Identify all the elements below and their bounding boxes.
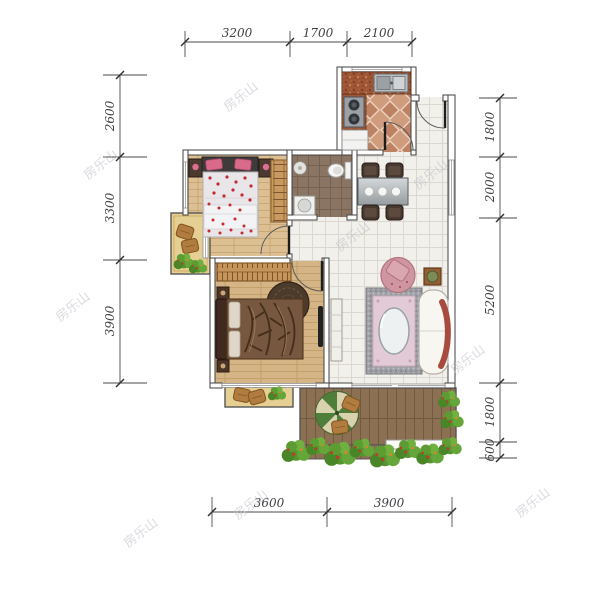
- nightstand: [189, 159, 202, 177]
- dimension-label: 2600: [103, 100, 117, 132]
- sliding-door: [352, 384, 445, 388]
- floor-plan-svg: 3200 1700 2100 2600 3300 3900 1800 2000 …: [0, 0, 600, 600]
- watermark: 房乐山: [81, 147, 122, 184]
- window: [184, 162, 188, 208]
- plant-stand: [424, 268, 441, 285]
- kitchen-sink: [374, 74, 408, 92]
- dimension-label: 3200: [222, 26, 253, 40]
- dimension-label: 5200: [483, 284, 497, 315]
- window: [222, 384, 316, 388]
- washing-machine: [294, 196, 315, 215]
- dimension-label: 2000: [483, 171, 497, 203]
- watermark: 房乐山: [513, 485, 554, 522]
- watermark: 房乐山: [121, 515, 162, 552]
- nightstand: [217, 287, 229, 299]
- dimension-label: 3900: [103, 305, 117, 336]
- toilet: [328, 162, 351, 179]
- dimension-label: 1800: [483, 111, 497, 142]
- dimension-label: 1700: [303, 26, 334, 40]
- bed-master: [216, 299, 303, 359]
- dimension-label: 3300: [103, 192, 117, 223]
- dining-chair: [386, 163, 403, 178]
- armchair: [381, 258, 415, 293]
- plate: [365, 187, 374, 196]
- plate: [392, 187, 401, 196]
- nightstand: [217, 360, 229, 372]
- seat-cushion: [331, 419, 349, 434]
- wardrobe: [271, 160, 287, 222]
- window: [352, 68, 402, 72]
- area-rug: [366, 288, 422, 374]
- dining-chair: [362, 205, 379, 220]
- dining-chair: [362, 163, 379, 178]
- tv: [318, 306, 323, 347]
- sofa: [419, 290, 448, 374]
- bed-double: [202, 157, 258, 237]
- bathroom-sink: [294, 162, 307, 175]
- dimension-label: 2100: [363, 26, 395, 40]
- kitchen-cabinet: [342, 130, 368, 150]
- watermark: 房乐山: [53, 289, 94, 326]
- stove: [344, 97, 364, 127]
- floor-plan-page: 3200 1700 2100 2600 3300 3900 1800 2000 …: [0, 0, 600, 600]
- dimension-label: 3900: [374, 496, 405, 510]
- watermark: 房乐山: [221, 79, 262, 116]
- tv-cabinet: [331, 299, 342, 361]
- dimension-label: 1800: [483, 396, 497, 427]
- plate: [378, 187, 387, 196]
- floor-pillow: [181, 238, 199, 254]
- dining-chair: [386, 205, 403, 220]
- dimension-label: 600: [483, 438, 497, 461]
- wardrobe: [217, 263, 291, 281]
